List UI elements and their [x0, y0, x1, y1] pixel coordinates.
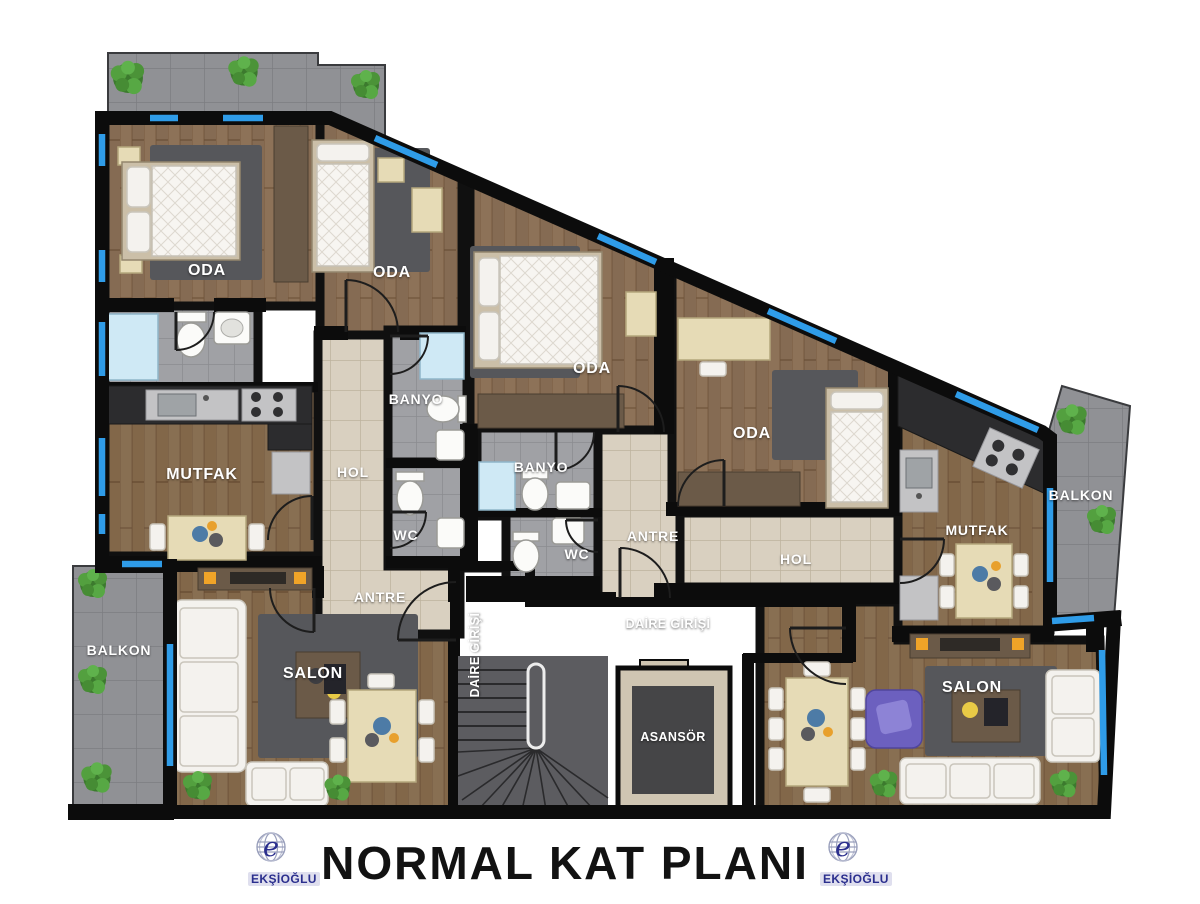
chair: [851, 718, 865, 740]
brand-logo-right: e EKŞİOĞLU: [820, 830, 890, 888]
room-label-antre-1: ANTRE: [354, 589, 406, 605]
wardrobe: [678, 472, 800, 506]
desk: [626, 292, 656, 336]
desk: [412, 188, 442, 232]
globe-icon: e: [820, 830, 866, 870]
room-label-hol-1: HOL: [337, 464, 369, 480]
label-daire-girisi-left: DAİRE GİRİŞİ: [467, 613, 482, 698]
chair: [419, 700, 434, 724]
stove: [242, 389, 296, 421]
floor-plan: ODA ODA ODA ODA BANYO BANYO WC WC MUTFAK…: [0, 0, 1200, 822]
tv: [940, 638, 1000, 651]
brand-monogram: e: [263, 832, 279, 863]
dining-table: [786, 678, 848, 786]
room-hol-2: [680, 513, 898, 587]
wardrobe: [478, 394, 624, 428]
chair: [1014, 554, 1028, 576]
chair: [769, 688, 783, 710]
room-label-oda-2: ODA: [373, 264, 411, 281]
chair: [851, 748, 865, 770]
chair: [769, 718, 783, 740]
desk: [678, 318, 770, 360]
pillow: [127, 167, 150, 207]
room-label-balkon-right: BALKON: [1049, 487, 1114, 503]
room-label-asansor: ASANSÖR: [640, 729, 705, 744]
room-label-oda-1: ODA: [188, 262, 226, 279]
kitchen-table: [956, 544, 1012, 618]
shower: [479, 462, 515, 510]
brand-name: EKŞİOĞLU: [820, 872, 892, 886]
brand-logo-left: e EKŞİOĞLU: [248, 830, 318, 888]
chair: [419, 738, 434, 762]
room-label-wc-2: WC: [565, 546, 590, 562]
room-label-wc-1: WC: [394, 527, 419, 543]
sink: [556, 482, 590, 509]
sink: [437, 518, 464, 548]
room-label-antre-2: ANTRE: [627, 528, 679, 544]
sink: [436, 430, 464, 460]
plan-title: NORMAL KAT PLANI: [321, 836, 809, 890]
chair: [769, 748, 783, 770]
pillow: [127, 212, 150, 252]
chair: [330, 738, 345, 762]
nightstand: [378, 158, 404, 182]
pillow: [317, 144, 369, 161]
pillow: [479, 312, 499, 360]
pillow: [479, 258, 499, 306]
globe-icon: e: [248, 830, 294, 870]
room-label-banyo-1: BANYO: [389, 391, 444, 407]
brand-monogram: e: [835, 832, 851, 863]
room-label-mutfak-2: MUTFAK: [945, 522, 1008, 538]
kitchen-table: [168, 516, 246, 560]
chair: [804, 788, 830, 802]
footer: e EKŞİOĞLU NORMAL KAT PLANI e EKŞİOĞLU: [0, 822, 1200, 904]
room-label-balkon-left: BALKON: [87, 642, 152, 658]
toilet: [522, 478, 548, 510]
tv: [230, 572, 286, 584]
room-label-banyo-2: BANYO: [514, 459, 569, 475]
room-label-mutfak-1: MUTFAK: [166, 466, 237, 483]
room-label-oda-4: ODA: [733, 425, 771, 442]
chair: [1014, 586, 1028, 608]
room-label-salon-1: SALON: [283, 665, 343, 682]
chair: [940, 586, 954, 608]
chair: [700, 362, 726, 376]
toilet: [513, 540, 539, 572]
floor-plan-page: ODA ODA ODA ODA BANYO BANYO WC WC MUTFAK…: [0, 0, 1200, 904]
balcony-left-wall: [68, 804, 174, 820]
chair: [940, 554, 954, 576]
chair: [851, 688, 865, 710]
chair: [368, 674, 394, 688]
shower: [420, 333, 464, 379]
chair: [249, 524, 264, 550]
window: [1052, 618, 1094, 621]
room-label-salon-2: SALON: [942, 679, 1002, 696]
pillow: [831, 392, 883, 409]
room-label-oda-3: ODA: [573, 360, 611, 377]
room-label-hol-2: HOL: [780, 551, 812, 567]
brand-name: EKŞİOĞLU: [248, 872, 320, 886]
shower: [108, 314, 158, 380]
label-daire-girisi-right: DAİRE GİRİŞİ: [626, 616, 711, 631]
dining-table: [348, 690, 416, 782]
wardrobe: [274, 126, 308, 282]
fridge: [272, 452, 310, 494]
toilet: [397, 481, 423, 515]
balcony-left: [68, 566, 174, 820]
chair: [150, 524, 165, 550]
chair: [330, 700, 345, 724]
window: [1102, 650, 1104, 775]
